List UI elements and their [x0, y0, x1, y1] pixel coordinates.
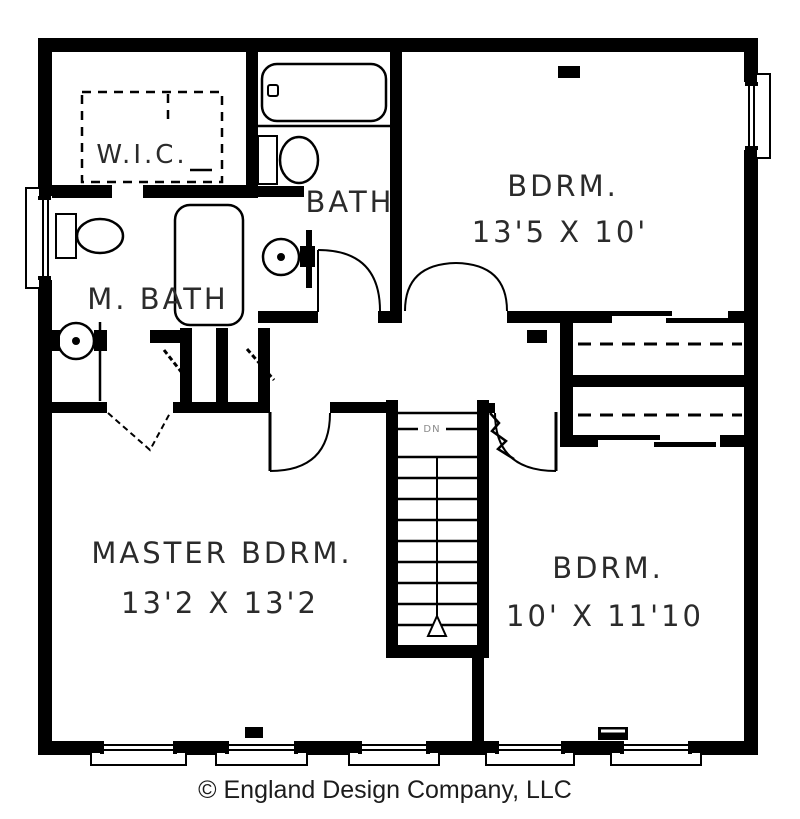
wall-segment [507, 311, 612, 323]
sink-icon [50, 322, 107, 401]
wall-segment [258, 186, 304, 197]
room-dims-bedroom2: 10' X 11'10 [506, 599, 704, 633]
room-dims-bedroom1: 13'5 X 10' [472, 215, 649, 249]
closet-bypass-door [612, 311, 672, 316]
vent-icon [527, 330, 547, 343]
door-swing [405, 263, 507, 311]
wall-segment [150, 330, 192, 343]
wall-segment [258, 311, 318, 323]
room-label-bedroom1: BDRM. [507, 169, 619, 203]
window [91, 741, 186, 765]
door-arc [270, 413, 330, 471]
wall-segment [246, 52, 258, 198]
window [349, 741, 439, 765]
wall-segment [38, 38, 52, 755]
wall-segment [560, 375, 758, 387]
room-label-bath: BATH [305, 185, 394, 219]
stair-direction-label: DN [423, 424, 440, 435]
closet-bypass-door [598, 435, 660, 440]
wall-segment [38, 38, 758, 52]
room-label-master-bedroom: MASTER BDRM. [91, 536, 352, 570]
window [611, 741, 701, 765]
room-label-master-bath: M. BATH [87, 282, 228, 316]
wall-segment [728, 311, 758, 323]
bathtub-icon [258, 64, 390, 126]
wall-segment [472, 658, 484, 741]
wall-segment [477, 400, 489, 658]
wall-segment [216, 328, 228, 413]
toilet-icon [258, 136, 318, 184]
window [744, 74, 770, 158]
door-arc [456, 263, 507, 311]
door-swing [270, 412, 330, 471]
door-swing [318, 250, 380, 312]
floor-plan-page: DN W.I.C. BATH M. BATH BDRM. 13'5 X 10' … [0, 0, 800, 819]
wall-segment [378, 311, 402, 323]
floor-plan-canvas: DN W.I.C. BATH M. BATH BDRM. 13'5 X 10' … [0, 0, 800, 819]
vent-icon [598, 727, 628, 740]
copyright-text: © England Design Company, LLC [198, 776, 572, 804]
window [26, 188, 52, 288]
room-dims-master-bedroom: 13'2 X 13'2 [121, 586, 319, 620]
wall-segment [390, 52, 402, 315]
door-swing [108, 413, 170, 450]
door-leaf [108, 413, 170, 450]
window [486, 741, 574, 765]
room-label-wic: W.I.C. [96, 140, 187, 170]
window [216, 741, 307, 765]
closet-bypass-door [666, 318, 728, 323]
closet-bypass-door [654, 442, 716, 447]
room-label-bedroom2: BDRM. [552, 551, 664, 585]
wall-segment [386, 645, 489, 658]
wall-segment [38, 402, 107, 413]
vent-icon [558, 66, 580, 78]
door-arc [318, 250, 380, 311]
wall-segment [386, 400, 398, 658]
break-line [490, 413, 514, 459]
door-arc [405, 263, 456, 311]
wall-segment [143, 185, 258, 198]
vent-icon [245, 727, 263, 738]
stairs: DN [398, 413, 514, 636]
wall-segment [560, 435, 598, 447]
toilet-icon [56, 214, 123, 258]
wall-segment [720, 435, 758, 447]
